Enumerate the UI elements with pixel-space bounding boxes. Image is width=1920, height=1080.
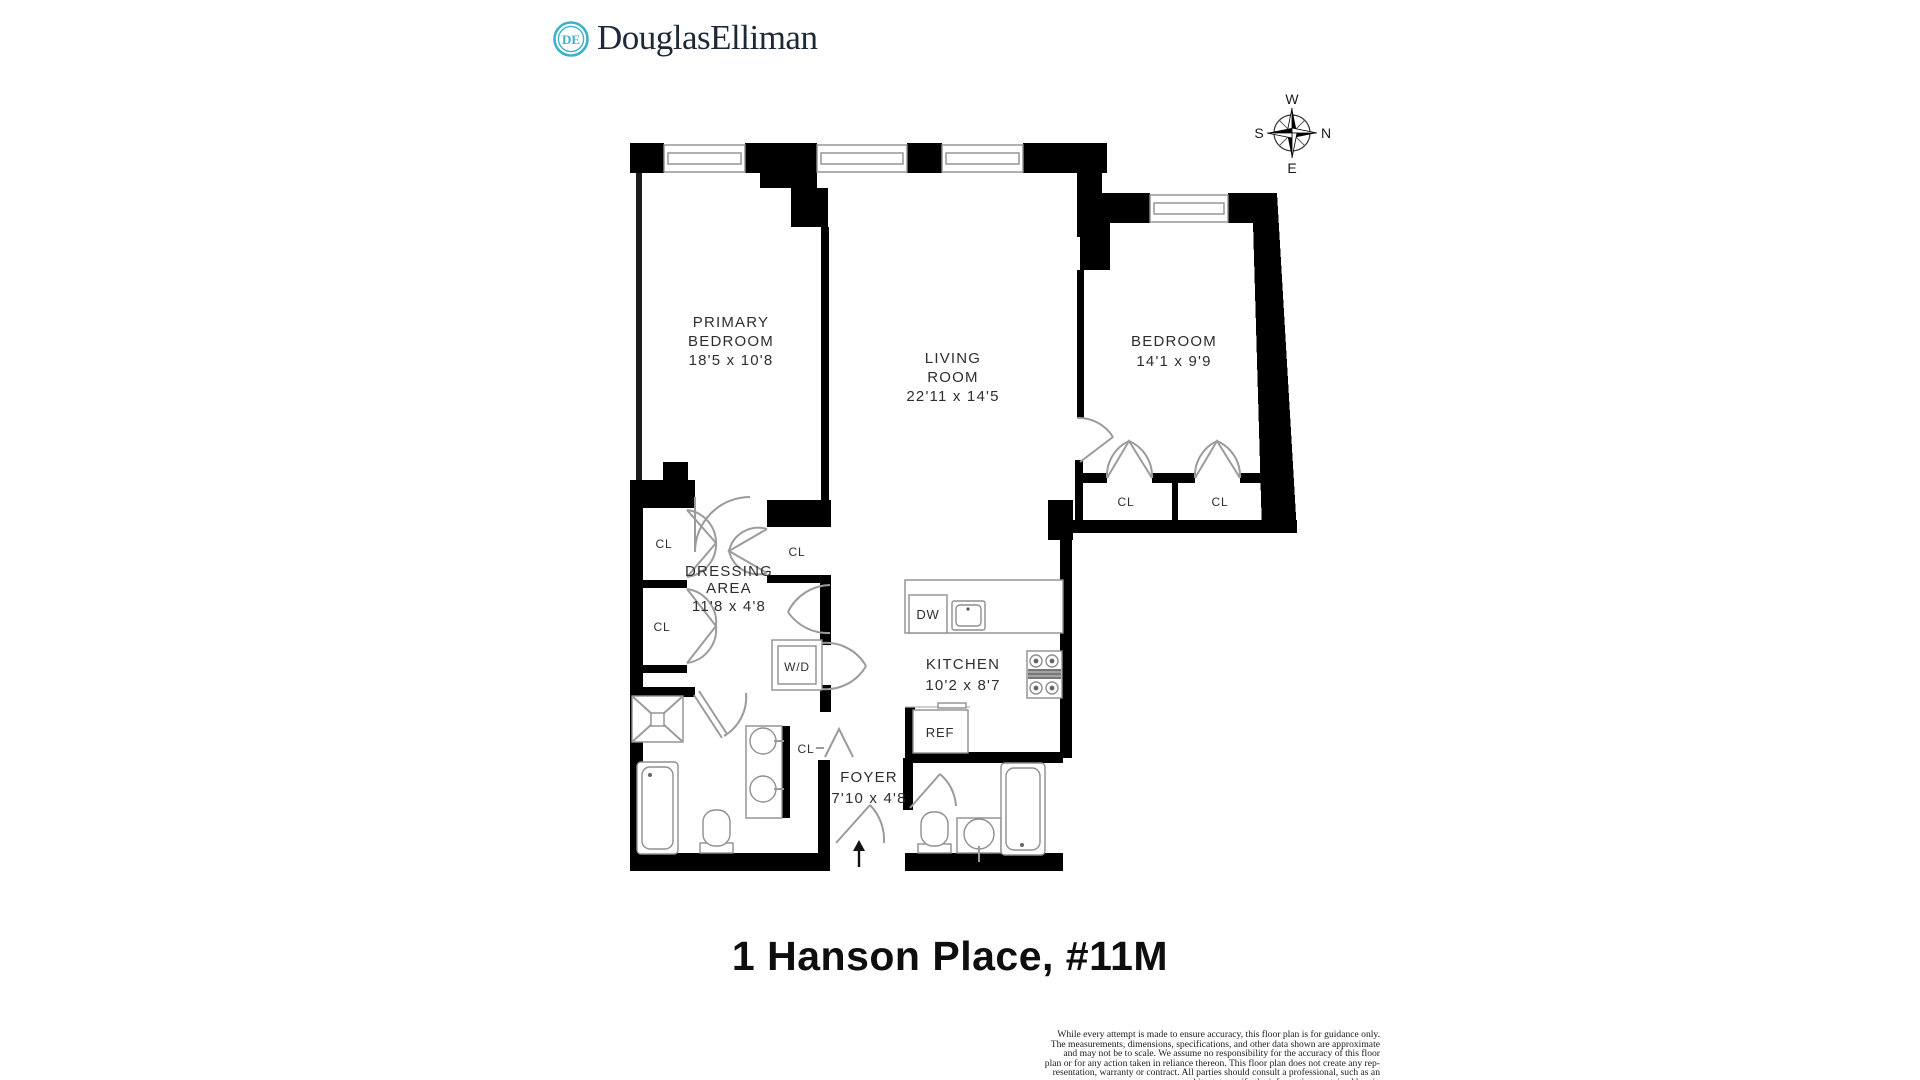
- closet-label: CL: [798, 742, 815, 756]
- kitchen-sink-icon: [952, 601, 985, 630]
- room-dressing-area: DRESSING AREA 11'8 x 4'8: [685, 563, 773, 615]
- svg-text:ROOM: ROOM: [927, 369, 978, 386]
- closet-label: CL: [654, 620, 671, 634]
- bedroom-dims: 14'1 x 9'9: [1136, 353, 1211, 370]
- dressing-area-label: DRESSING: [685, 563, 773, 580]
- svg-text:AREA: AREA: [706, 580, 752, 597]
- window-icon: [817, 145, 907, 172]
- closet-label: CL: [1118, 495, 1135, 509]
- compass-south-label: S: [1254, 125, 1263, 141]
- foyer-label: FOYER: [840, 769, 898, 786]
- double-sink-vanity-icon: [746, 726, 784, 818]
- bathtub-icon: [637, 762, 678, 854]
- living-room-label: LIVING: [925, 350, 981, 367]
- closet-label: CL: [1212, 495, 1229, 509]
- foyer-dims: 7'10 x 4'8: [831, 790, 906, 807]
- shower-icon: [632, 696, 683, 742]
- primary-bedroom-dims: 18'5 x 10'8: [689, 352, 774, 369]
- bathtub-icon: [1001, 763, 1045, 855]
- room-labels: PRIMARY BEDROOM 18'5 x 10'8 LIVING ROOM …: [654, 314, 1229, 807]
- page-title: 1 Hanson Place, #11M: [732, 933, 1168, 980]
- living-room-dims: 22'11 x 14'5: [906, 388, 999, 405]
- floor-plan-page: DE DouglasElliman: [0, 0, 1920, 1080]
- kitchen-label: KITCHEN: [926, 656, 1000, 673]
- dressing-area-dims: 11'8 x 4'8: [692, 598, 766, 615]
- walls: [630, 143, 1297, 871]
- room-foyer: FOYER 7'10 x 4'8: [831, 769, 906, 807]
- window-icon: [1150, 195, 1228, 222]
- closet-label: CL: [789, 545, 806, 559]
- svg-text:BEDROOM: BEDROOM: [688, 333, 774, 350]
- toilet-icon: [700, 810, 733, 853]
- washer-dryer-label: W/D: [784, 660, 810, 674]
- floor-plan-drawing: PRIMARY BEDROOM 18'5 x 10'8 LIVING ROOM …: [0, 0, 1920, 1080]
- closet-label: CL: [656, 537, 673, 551]
- toilet-icon: [918, 812, 951, 853]
- primary-bedroom-label: PRIMARY: [693, 314, 769, 331]
- compass-icon: W N E S: [1254, 91, 1331, 176]
- room-primary-bedroom: PRIMARY BEDROOM 18'5 x 10'8: [688, 314, 774, 369]
- stove-icon: [1027, 651, 1062, 698]
- compass-north-label: N: [1321, 125, 1331, 141]
- entry-arrow-icon: [853, 840, 865, 867]
- window-icon: [664, 145, 745, 172]
- kitchen-dims: 10'2 x 8'7: [925, 677, 1000, 694]
- compass-west-label: W: [1285, 91, 1299, 107]
- window-icon: [942, 145, 1023, 172]
- refrigerator-label: REF: [926, 725, 954, 740]
- room-kitchen: KITCHEN 10'2 x 8'7: [925, 656, 1000, 694]
- compass-east-label: E: [1287, 160, 1296, 176]
- room-living-room: LIVING ROOM 22'11 x 14'5: [906, 350, 999, 405]
- primary-bathroom-fixtures: [632, 696, 784, 854]
- disclaimer-text: While every attempt is made to ensure ac…: [980, 1030, 1380, 1080]
- bedroom-label: BEDROOM: [1131, 333, 1217, 350]
- room-bedroom: BEDROOM 14'1 x 9'9: [1131, 333, 1217, 370]
- dishwasher-label: DW: [916, 607, 939, 622]
